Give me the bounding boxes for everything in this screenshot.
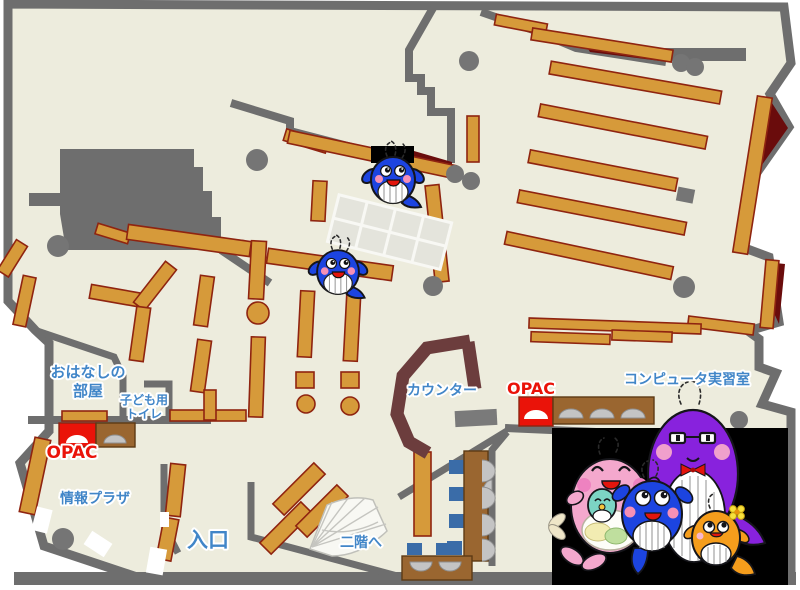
label-kids-toilet-line2: トイレ bbox=[126, 407, 162, 421]
bookshelf bbox=[343, 295, 360, 362]
bookshelf bbox=[414, 452, 431, 536]
reading-table bbox=[341, 372, 359, 388]
bookshelf bbox=[467, 116, 479, 162]
round-table bbox=[341, 397, 359, 415]
bookshelf bbox=[62, 411, 107, 421]
label-storytelling-room-line2: 部屋 bbox=[73, 382, 103, 400]
floor-map-svg: おはなしの 部屋 子ども用 トイレ OPAC 情報プラザ 入口 カウンター OP… bbox=[0, 0, 800, 590]
gray-notch-arm bbox=[29, 193, 62, 206]
bookshelf bbox=[531, 332, 610, 345]
label-info-plaza: 情報プラザ bbox=[60, 490, 130, 507]
label-kids-toilet-line1: 子ども用 bbox=[120, 393, 168, 407]
bookshelf bbox=[311, 181, 327, 222]
round-table bbox=[247, 302, 269, 324]
bookshelf bbox=[249, 337, 266, 417]
label-storytelling-room-line1: おはなしの bbox=[50, 363, 125, 381]
label-opac-left: OPAC bbox=[47, 443, 98, 463]
library-floor-map: おはなしの 部屋 子ども用 トイレ OPAC 情報プラザ 入口 カウンター OP… bbox=[0, 0, 800, 590]
label-counter: カウンター bbox=[407, 383, 477, 399]
label-opac-right: OPAC bbox=[507, 379, 555, 398]
bookshelf bbox=[297, 291, 314, 358]
bookshelf bbox=[612, 330, 672, 342]
reading-table bbox=[296, 372, 314, 388]
counter-desk bbox=[455, 409, 498, 427]
opac-terminal-right bbox=[519, 397, 654, 426]
doorway bbox=[160, 512, 169, 527]
whale-mascot-baby bbox=[588, 489, 616, 522]
label-stairs: 二階へ bbox=[340, 534, 382, 551]
label-entrance: 入口 bbox=[187, 528, 229, 552]
bookshelf bbox=[248, 241, 266, 300]
label-computer-room: コンピュータ実習室 bbox=[624, 371, 750, 388]
round-table bbox=[297, 395, 315, 413]
bookshelf bbox=[204, 390, 216, 420]
